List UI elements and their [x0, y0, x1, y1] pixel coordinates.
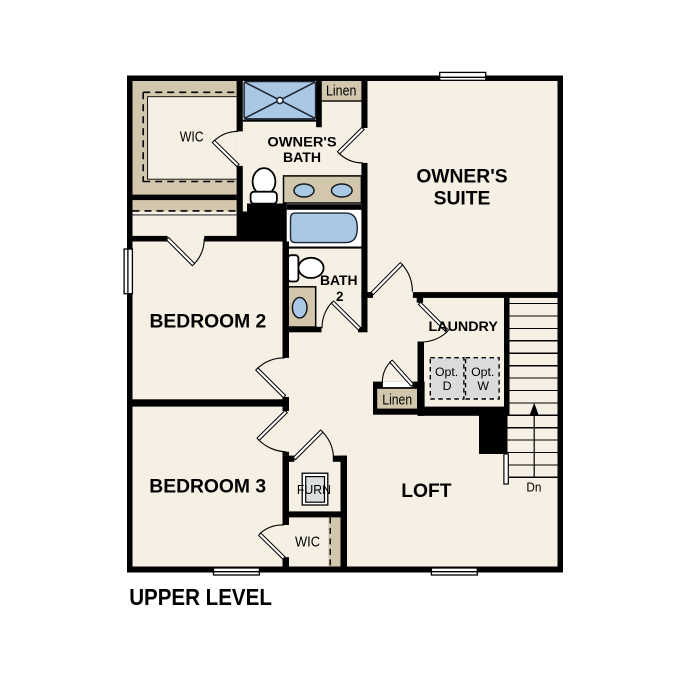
svg-text:LOFT: LOFT — [401, 481, 452, 502]
svg-text:BATH: BATH — [283, 150, 321, 165]
svg-text:Linen: Linen — [382, 393, 412, 409]
svg-text:OWNER'S: OWNER'S — [267, 135, 336, 150]
svg-text:2: 2 — [336, 289, 343, 304]
svg-text:BATH: BATH — [320, 273, 358, 288]
svg-text:UPPER LEVEL: UPPER LEVEL — [129, 584, 272, 610]
svg-text:LAUNDRY: LAUNDRY — [429, 319, 498, 334]
svg-text:OWNER'S: OWNER'S — [416, 167, 507, 188]
svg-text:Linen: Linen — [326, 83, 356, 99]
svg-text:FURN: FURN — [297, 483, 331, 497]
svg-text:Opt.: Opt. — [435, 365, 458, 379]
svg-text:D: D — [443, 379, 452, 393]
svg-text:SUITE: SUITE — [434, 188, 491, 209]
svg-text:W: W — [477, 379, 489, 393]
svg-text:Dn: Dn — [526, 480, 541, 495]
svg-text:BEDROOM 3: BEDROOM 3 — [149, 477, 266, 498]
svg-text:Opt.: Opt. — [471, 365, 494, 379]
svg-text:WIC: WIC — [180, 129, 204, 145]
svg-text:BEDROOM 2: BEDROOM 2 — [150, 312, 267, 333]
svg-text:WIC: WIC — [295, 535, 320, 551]
